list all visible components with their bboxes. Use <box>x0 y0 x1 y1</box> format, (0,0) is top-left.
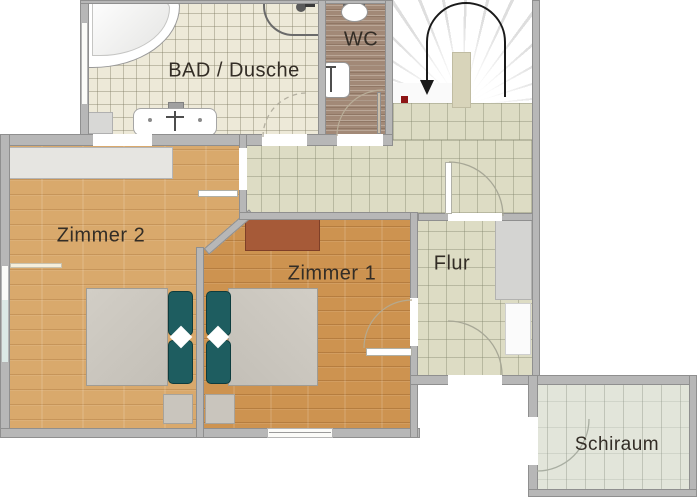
bath-faucet-icon <box>174 111 176 131</box>
wc-door-leaf <box>377 92 381 134</box>
bath-faucet-icon <box>166 116 184 118</box>
wardrobe <box>7 147 173 179</box>
hall-main-floor <box>243 140 533 218</box>
wall <box>385 0 393 142</box>
wall <box>80 0 393 4</box>
flur-shaft-niche <box>495 218 532 300</box>
zimmer1-door-leaf <box>366 348 412 356</box>
flur-exit-opening <box>448 375 502 385</box>
zimmer1-door-opening <box>410 298 418 346</box>
wall <box>528 375 697 385</box>
dresser <box>245 219 320 251</box>
room-label-flur: Flur <box>434 253 470 276</box>
shower-head-icon <box>305 4 315 7</box>
room-label-zimmer1: Zimmer 1 <box>288 263 376 286</box>
wall <box>318 0 326 142</box>
bath-niche-opening <box>93 134 152 146</box>
toilet <box>341 2 368 22</box>
room-label-zimmer2: Zimmer 2 <box>57 225 145 248</box>
room-label-schiraum: Schiraum <box>575 434 659 456</box>
wall <box>0 428 420 438</box>
schiraum-door-opening <box>528 417 538 465</box>
window-sill <box>10 263 62 268</box>
nightstand <box>205 394 235 424</box>
flur-door-leaf <box>445 162 452 214</box>
bed-zimmer1-mattress <box>228 288 318 386</box>
zimmer2-door-leaf <box>198 190 238 197</box>
floor-plan: BAD / Dusche WC Zimmer 2 Zimmer 1 Flur S… <box>0 0 700 500</box>
bath-sink-dots <box>198 118 202 122</box>
flur-door-opening <box>448 213 502 221</box>
wall <box>196 247 204 438</box>
bed-zimmer2-mattress <box>86 288 168 386</box>
wall <box>239 212 418 220</box>
zimmer2-door-opening <box>239 148 247 190</box>
wall <box>0 134 393 146</box>
bath-window <box>81 22 88 105</box>
wall <box>532 0 540 385</box>
zimmer1-window-glass <box>269 432 331 433</box>
wc-faucet-icon <box>326 66 336 68</box>
stairs-marker <box>401 96 408 103</box>
room-label-bad: BAD / Dusche <box>168 60 300 83</box>
room-label-wc: WC <box>344 29 378 52</box>
flur-cupboard <box>505 303 531 355</box>
bath-sink-dots <box>148 118 152 122</box>
zimmer1-window <box>267 428 333 438</box>
nightstand <box>163 394 193 424</box>
wall <box>528 489 697 497</box>
bath-shelf <box>85 112 113 134</box>
bath-door-opening <box>262 134 307 146</box>
stairs-newel-column <box>452 52 471 108</box>
wc-faucet-icon <box>330 68 332 92</box>
zimmer2-window-glass <box>2 300 8 362</box>
wc-door-opening <box>337 134 383 146</box>
wall <box>689 375 697 497</box>
